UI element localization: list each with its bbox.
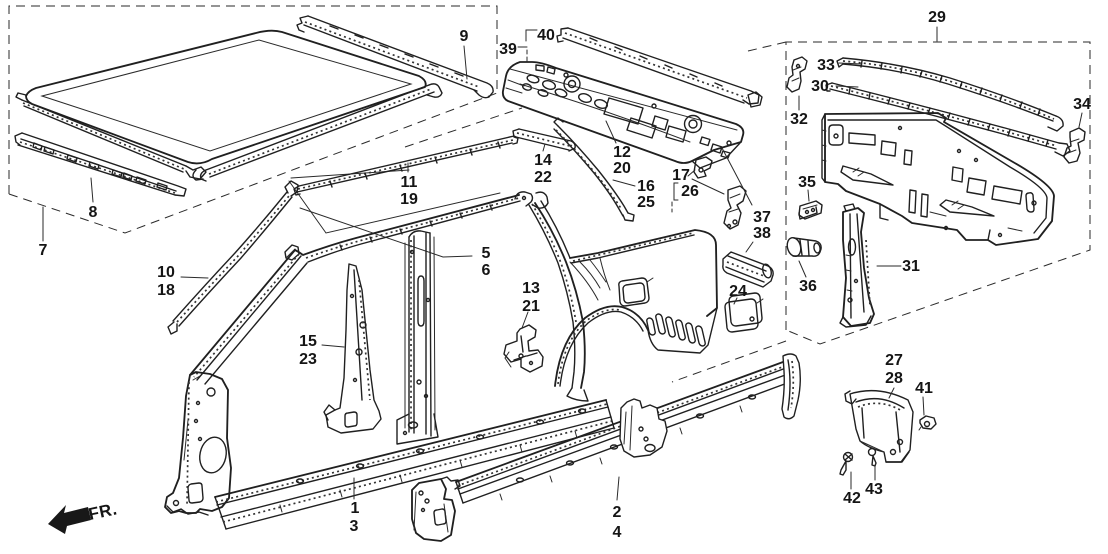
svg-text:17: 17: [672, 167, 690, 184]
svg-text:23: 23: [299, 351, 317, 368]
svg-text:29: 29: [928, 9, 946, 26]
svg-text:6: 6: [482, 262, 491, 279]
svg-text:4: 4: [613, 524, 622, 541]
svg-text:2: 2: [613, 504, 622, 521]
svg-text:40: 40: [537, 27, 555, 44]
svg-text:37: 37: [753, 209, 771, 226]
svg-text:20: 20: [613, 160, 631, 177]
svg-text:38: 38: [753, 225, 771, 242]
svg-text:33: 33: [817, 57, 835, 74]
svg-text:30: 30: [811, 78, 829, 95]
svg-text:24: 24: [729, 283, 747, 300]
svg-text:21: 21: [522, 298, 540, 315]
svg-text:11: 11: [401, 174, 418, 191]
svg-text:35: 35: [798, 174, 816, 191]
svg-text:FR.: FR.: [87, 499, 119, 524]
svg-text:13: 13: [522, 280, 540, 297]
svg-text:41: 41: [915, 380, 933, 397]
svg-text:27: 27: [885, 352, 903, 369]
svg-text:15: 15: [299, 333, 317, 350]
svg-text:7: 7: [39, 242, 48, 259]
svg-text:14: 14: [534, 152, 552, 169]
svg-text:43: 43: [865, 481, 883, 498]
svg-text:32: 32: [790, 111, 808, 128]
svg-text:42: 42: [843, 490, 861, 507]
svg-text:18: 18: [157, 282, 175, 299]
svg-text:25: 25: [637, 194, 655, 211]
svg-text:3: 3: [350, 518, 359, 535]
svg-text:34: 34: [1073, 96, 1091, 113]
svg-text:8: 8: [89, 204, 98, 221]
svg-text:16: 16: [637, 178, 655, 195]
svg-text:10: 10: [157, 264, 175, 281]
svg-text:39: 39: [499, 41, 517, 58]
svg-text:5: 5: [482, 245, 491, 262]
svg-text:28: 28: [885, 370, 903, 387]
svg-text:36: 36: [799, 278, 817, 295]
svg-text:31: 31: [902, 258, 920, 275]
svg-text:1: 1: [351, 500, 360, 517]
svg-text:12: 12: [613, 144, 631, 161]
svg-text:19: 19: [400, 191, 418, 208]
svg-text:26: 26: [681, 183, 699, 200]
svg-text:22: 22: [534, 169, 552, 186]
svg-text:9: 9: [460, 28, 469, 45]
